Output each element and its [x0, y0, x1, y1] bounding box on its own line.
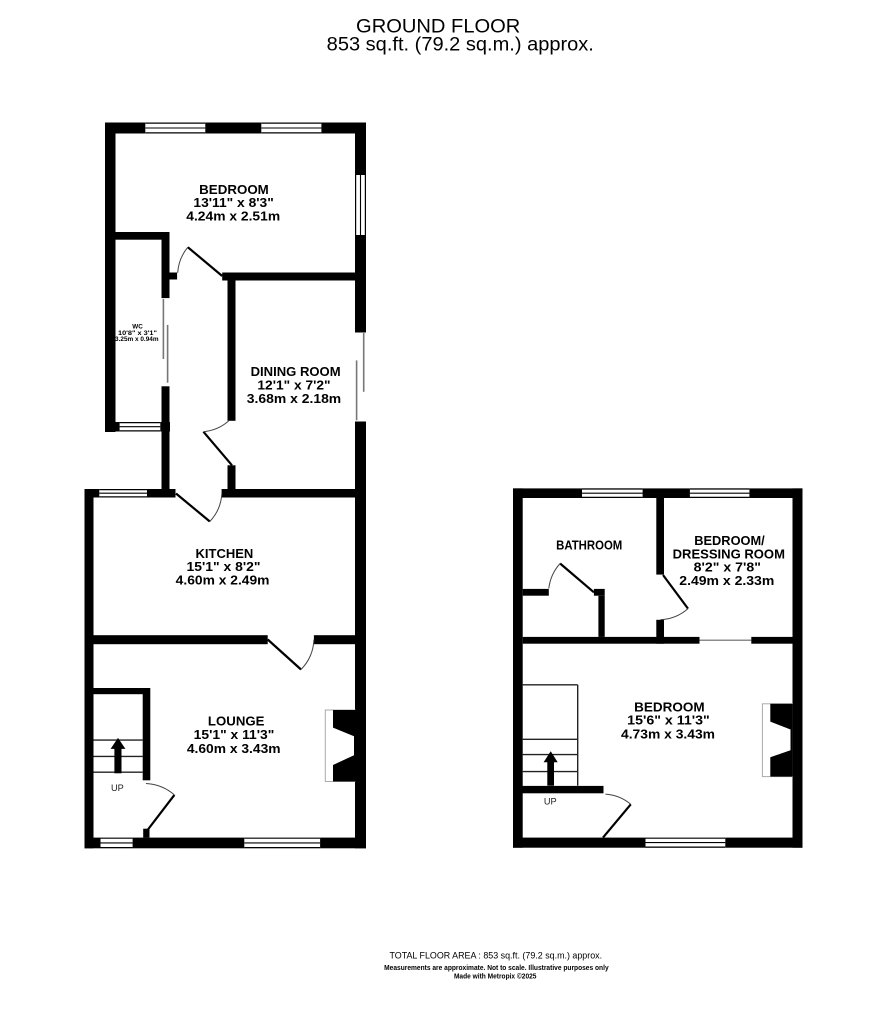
- svg-text:15'6" x 11'3": 15'6" x 11'3": [627, 713, 710, 728]
- svg-text:4.73m x 3.43m: 4.73m x 3.43m: [621, 727, 715, 742]
- svg-text:853 sq.ft. (79.2 sq.m.) approx: 853 sq.ft. (79.2 sq.m.) approx.: [327, 35, 594, 56]
- svg-text:Made with Metropix ©2025: Made with Metropix ©2025: [454, 972, 537, 980]
- svg-text:BATHROOM: BATHROOM: [556, 537, 622, 552]
- svg-text:UP: UP: [544, 796, 557, 806]
- svg-text:3.68m x 2.18m: 3.68m x 2.18m: [247, 391, 341, 406]
- svg-text:4.60m x 3.43m: 4.60m x 3.43m: [187, 741, 281, 756]
- svg-text:UP: UP: [111, 783, 124, 793]
- svg-text:2.49m x 2.33m: 2.49m x 2.33m: [679, 573, 774, 588]
- svg-text:3.25m x 0.94m: 3.25m x 0.94m: [115, 336, 159, 343]
- svg-text:4.60m x 2.49m: 4.60m x 2.49m: [176, 573, 270, 588]
- svg-text:4.24m x 2.51m: 4.24m x 2.51m: [186, 208, 280, 223]
- svg-text:Measurements are approximate.: Measurements are approximate. Not to sca…: [384, 965, 609, 972]
- svg-text:TOTAL FLOOR AREA : 853 sq.ft.: TOTAL FLOOR AREA : 853 sq.ft. (79.2 sq.m…: [390, 950, 603, 960]
